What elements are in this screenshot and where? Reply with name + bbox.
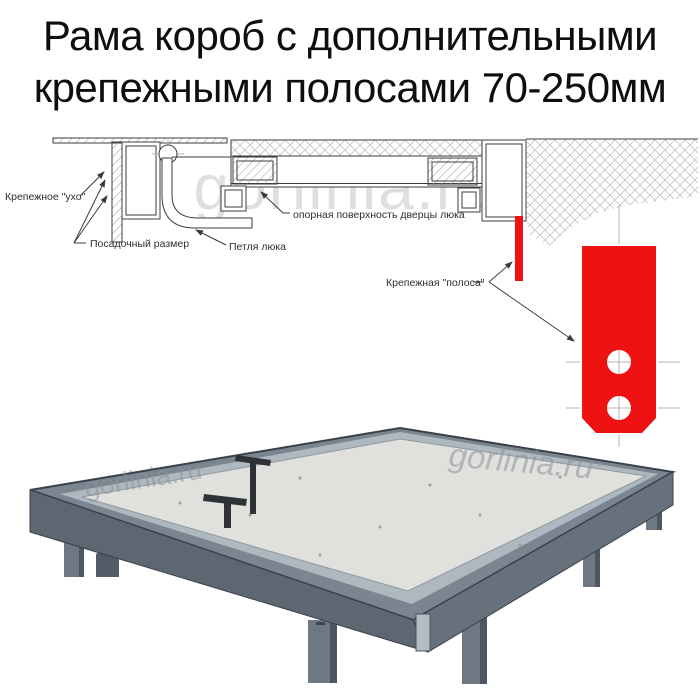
label-anchor-ear: Крепежное "ухо" — [5, 191, 86, 203]
label-seat-size: Посадочный размер — [90, 238, 189, 250]
section-diagram: gorlinia.ru — [5, 138, 698, 447]
leg-front-left-edge — [330, 620, 337, 683]
title-line-2: крепежными полосами 70-250мм — [0, 62, 700, 114]
title-line-1: Рама короб с дополнительными — [0, 10, 700, 62]
handle-short-stem — [224, 501, 231, 528]
ceiling-band — [231, 140, 482, 156]
product-image: gorlinia.ru — [0, 125, 700, 700]
mounting-strip-drawing — [515, 216, 523, 281]
label-mounting-strip: Крепежная "полоса" — [386, 277, 485, 289]
wall-hatch — [526, 139, 698, 246]
label-hinge: Петля люка — [229, 241, 286, 253]
frame-channel-opening — [416, 614, 430, 651]
leg-front-left-slot — [316, 622, 325, 625]
label-door-support: опорная поверхность дверцы люка — [293, 209, 465, 221]
anchor-ear-strip — [112, 142, 122, 242]
page-title: Рама короб с дополнительными крепежными … — [0, 0, 700, 125]
frame-profile-right — [482, 140, 526, 221]
handle-tall-stem — [250, 462, 256, 514]
leg-front-right-edge — [480, 615, 487, 684]
section-photo: gorlinia.ru gorlinia.ru — [30, 428, 673, 684]
